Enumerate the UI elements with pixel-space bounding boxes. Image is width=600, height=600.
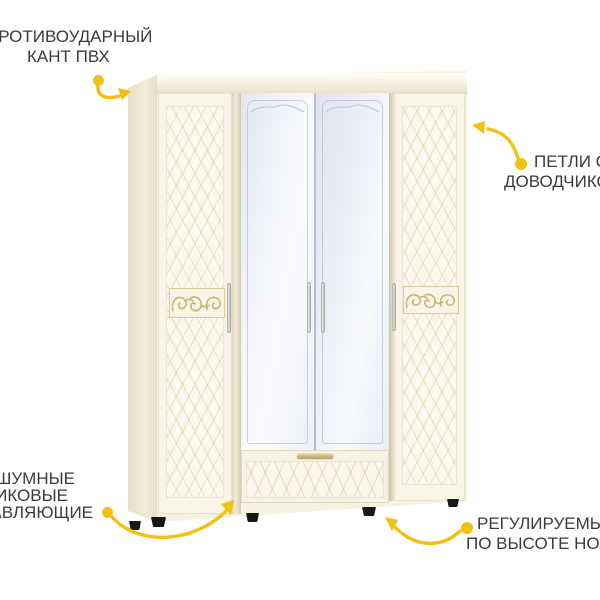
callout-dot-impact-edge: [93, 75, 104, 86]
arrow-hinges: [488, 129, 518, 158]
label-legs-line2: ПО ВЫСОТЕ НОЖКИ: [466, 534, 600, 554]
label-hinges-line1: ПЕТЛИ С: [534, 152, 600, 172]
carcass-divider-left: [232, 93, 241, 514]
mirror-top-curve-icon: [322, 101, 383, 115]
drawer-handle: [297, 454, 333, 459]
adjustable-foot: [362, 507, 376, 516]
callout-dot-legs: [461, 522, 473, 534]
door-right: [394, 93, 465, 501]
wardrobe-side-panel: [128, 70, 158, 526]
drawer: [241, 450, 389, 503]
adjustable-foot: [447, 499, 459, 507]
ornament-carving-left: [169, 288, 225, 318]
label-legs-line1: РЕГУЛИРУЕМЫЕ: [477, 514, 600, 534]
mirror-door-right: [316, 93, 389, 451]
label-hinges-line2: ДОВОДЧИКОМ: [504, 172, 600, 192]
mirror-frame: [322, 100, 383, 444]
door-handle-mirror-left: [307, 284, 311, 331]
arrowhead-hinges: [472, 121, 485, 134]
wardrobe-cornice: [157, 73, 467, 94]
door-handle-mirror-right: [321, 284, 325, 331]
arrow-legs: [395, 527, 460, 543]
drawer-diamond-panel: [246, 461, 384, 498]
scroll-ornament-icon: [403, 286, 459, 314]
mirror-frame: [247, 100, 308, 444]
label-impact-edge-line2: КАНТ ПВХ: [27, 47, 110, 67]
adjustable-foot: [151, 517, 166, 527]
door-left: [158, 93, 232, 514]
scroll-ornament-icon: [169, 288, 225, 318]
callout-dot-guides: [102, 507, 113, 518]
adjustable-foot: [246, 513, 259, 522]
callout-dot-hinges: [515, 158, 527, 170]
label-guides-line3: НАПРАВЛЯЮЩИЕ: [0, 503, 93, 523]
label-impact-edge-line1: ПРОТИВОУДАРНЫЙ: [0, 27, 152, 47]
arrow-impact-edge: [98, 85, 119, 98]
adjustable-foot: [129, 521, 141, 530]
door-handle-left: [227, 285, 231, 331]
wardrobe: [128, 70, 467, 526]
mirror-door-left: [241, 93, 314, 451]
arrowhead-legs: [385, 517, 398, 531]
door-handle-right: [392, 285, 396, 329]
mirror-top-curve-icon: [247, 101, 308, 115]
product-callout-image: ПРОТИВОУДАРНЫЙ КАНТ ПВХ ПЕТЛИ С ДОВОДЧИК…: [0, 0, 600, 600]
ornament-carving-right: [403, 286, 459, 314]
wardrobe-front: [157, 70, 468, 526]
